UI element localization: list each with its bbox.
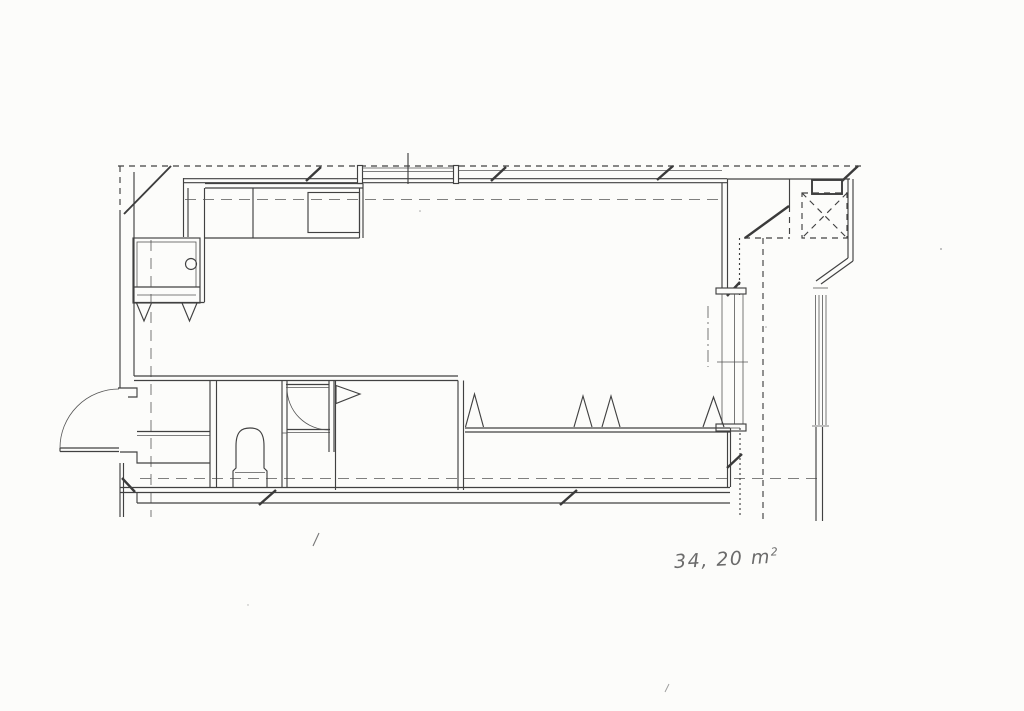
up-triangle-icon: [466, 394, 484, 427]
pennant-marker: [336, 380, 361, 490]
floor-plan-drawing: [0, 0, 1024, 711]
tick-mark: [313, 533, 319, 546]
scan-marks: [247, 210, 942, 692]
down-triangle-icon: [182, 303, 197, 321]
door-jamb: [120, 452, 210, 463]
door-jamb: [118, 388, 137, 397]
down-triangle-icon: [137, 303, 152, 321]
right-sliding-window: [708, 288, 748, 431]
appliance-cabinet: [133, 238, 205, 321]
entry-door: [60, 388, 210, 463]
bench-counter: [465, 394, 742, 516]
left-exterior-wall: [120, 166, 171, 517]
wall-brace-icon: [745, 206, 789, 238]
overhead-dashed-lines: [140, 200, 818, 518]
partition-walls: [134, 376, 464, 490]
area-value: 34, 20: [674, 547, 744, 573]
up-triangle-icon: [602, 396, 620, 427]
corner-brace-icon: [124, 166, 171, 214]
entry-step: [122, 432, 210, 493]
knob-icon: [186, 259, 197, 270]
top-exterior-wall: [118, 166, 861, 183]
sink-square: [308, 193, 360, 233]
wall-brace-icon: [727, 454, 742, 468]
area-exponent: 2: [770, 545, 778, 558]
pennant-flag-icon: [336, 386, 360, 404]
door-swing-arc: [60, 389, 119, 448]
door-swing-arc: [287, 388, 329, 430]
tick-mark: [665, 684, 669, 692]
pipe-shaft-x-box: [802, 193, 847, 238]
top-window: [358, 153, 459, 184]
room-right-wall: [722, 179, 728, 293]
area-unit: m: [750, 546, 771, 569]
bottom-exterior-wall: [120, 488, 730, 506]
wc-door: [286, 385, 329, 431]
mullion-slash-icon: [657, 166, 673, 180]
up-triangle-icon: [703, 397, 724, 427]
scanned-floor-plan: 34, 20 m2: [0, 0, 1024, 711]
kitchen-counter: [184, 178, 364, 302]
duct-box: [812, 180, 842, 194]
up-triangle-icon: [574, 396, 592, 427]
